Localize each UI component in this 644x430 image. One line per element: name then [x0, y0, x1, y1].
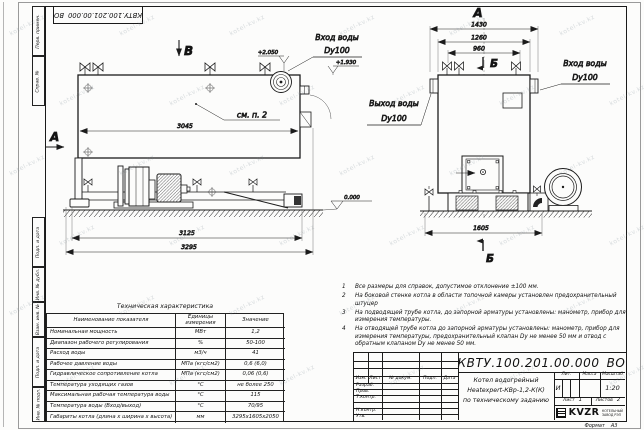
tech-table: Наименование показателя Единицы измерени…	[46, 313, 284, 422]
note-item: 2 На боковой стенке котла в области топо…	[340, 293, 627, 308]
tech-cell: Номинальная мощность	[47, 328, 176, 339]
level-inlet-label: +2.050	[258, 50, 279, 56]
elevation-nozzle	[328, 66, 359, 75]
tb-col-dokum: № докум.	[382, 376, 419, 383]
side-view: 0.000 +2.050 +1.930 Вход воды Dy100	[45, 33, 372, 255]
tb-lit-label: Лит.	[554, 373, 579, 379]
level-nozzle-label: +1.930	[336, 60, 357, 66]
tb-scale-value: 1:20	[600, 379, 625, 397]
format-value: А3	[611, 423, 618, 429]
front-view: А 1430 1260 960 Б Вход воды Dy100 Выход …	[367, 6, 610, 265]
note-number: 2	[340, 293, 355, 308]
description-line: Котел водогрейный	[458, 376, 554, 386]
tb-col-list: Лист	[368, 376, 382, 383]
format-label: Формат	[585, 423, 605, 429]
front-left-valve	[425, 186, 433, 211]
ground-hatch-side	[63, 211, 323, 218]
tech-cell: %	[176, 339, 226, 350]
inlet-nozzle	[530, 79, 538, 93]
dim-3045: 3045	[177, 123, 193, 130]
motor-hatch	[157, 174, 181, 202]
dim-3125: 3125	[179, 230, 195, 237]
tech-table-title: Техническая характеристика	[46, 303, 284, 310]
section-b-top-label: Б	[490, 58, 498, 70]
tb-row-utv: Утв.	[356, 415, 382, 421]
tech-cell: не более 250	[226, 381, 285, 392]
tech-cell: 0,6 (6,0)	[226, 360, 285, 371]
tech-cell: Температура уходящих газов	[47, 381, 176, 392]
doc-suffix: ВО	[607, 357, 626, 369]
view-a-title: А	[472, 6, 482, 20]
drawing-sheet: Перв. примен. Справ. № Подп. и дата Инв.…	[0, 0, 644, 430]
dim-960: 960	[473, 46, 485, 53]
note-text: На боковой стенке котла в области топочн…	[355, 293, 627, 308]
tb-sheet: Лист1	[554, 398, 591, 405]
tech-cell: Габариты котла (длина х ширина х высота)	[47, 412, 176, 423]
dim-1260: 1260	[471, 35, 487, 42]
tb-description: Котел водогрейный Heatexpert-КВр-1,2-К(К…	[458, 372, 554, 420]
tech-cell: 3295х1605х2050	[226, 412, 285, 423]
kvzr-logo: KVZR КОТЕЛЬНЫЙ ЗАВОД РЭП	[554, 405, 625, 420]
tech-cell: Рабочее давление воды	[47, 360, 176, 371]
notes-list: 1 Все размеры для справок, допустимое от…	[340, 284, 627, 351]
side-inlet-label: Вход воды	[315, 33, 359, 42]
ground-hatch-front	[420, 212, 592, 218]
tech-cell: °С	[176, 381, 226, 392]
front-inlet-dn: Dy100	[572, 73, 598, 82]
tech-cell: °С	[176, 391, 226, 402]
see-note-ref: см. п. 2	[237, 111, 267, 120]
tech-cell: Максимальная рабочая температура воды	[47, 391, 176, 402]
tech-cell: Температура воды (Вход/выход)	[47, 402, 176, 413]
tb-row-nkontr: Н.контр.	[356, 408, 382, 414]
tech-cell: 0,06 (0,6)	[226, 370, 285, 381]
tech-cell: Расход воды	[47, 349, 176, 360]
view-b-label: В	[184, 44, 193, 58]
tech-col-header: Единицы измерения	[176, 314, 226, 328]
dim-1430: 1430	[471, 22, 487, 29]
elevation-ground	[323, 201, 372, 210]
note-text: На отводящей трубе котла до запорной арм…	[355, 326, 627, 349]
tb-col-izm: Изм.	[354, 376, 368, 383]
note-number: 3	[340, 310, 355, 325]
kvzr-logo-text: KVZR	[569, 407, 600, 418]
dim-3295: 3295	[181, 244, 197, 251]
tb-mass-label: Масса	[579, 373, 600, 379]
tech-cell: МПа (кгс/см2)	[176, 360, 226, 371]
tech-col-header: Наименование показателя	[47, 314, 176, 328]
front-inlet-label: Вход воды	[563, 59, 607, 68]
front-outlet-dn: Dy100	[381, 114, 407, 123]
note-number: 1	[340, 284, 355, 292]
tb-sheets: Листов2	[591, 398, 625, 405]
tb-scale-label: Масштаб	[600, 373, 625, 379]
note-number: 4	[340, 326, 355, 349]
description-line: по техническому заданию	[458, 396, 554, 406]
kvzr-logo-icon	[556, 408, 566, 418]
inlet-flange-side	[271, 72, 292, 93]
outlet-nozzle	[430, 79, 438, 93]
furnace-door	[456, 156, 503, 193]
note-text: На подводящей трубе котла, до запорной а…	[355, 310, 627, 325]
note-item: 3 На подводящей трубе котла, до запорной…	[340, 310, 627, 325]
fan-blower	[530, 169, 582, 212]
format-note: Формат А3	[566, 423, 636, 429]
note-item: 1 Все размеры для справок, допустимое от…	[340, 284, 627, 292]
doc-number: КВТУ.100.201.00.000	[458, 357, 600, 369]
dim-1605: 1605	[473, 225, 489, 232]
kvzr-logo-subtext: КОТЕЛЬНЫЙ ЗАВОД РЭП	[602, 409, 623, 417]
tech-cell: Диапазон рабочего регулирования	[47, 339, 176, 350]
section-b-bottom-label: Б	[486, 253, 494, 265]
side-right-fittings	[300, 86, 331, 127]
tb-col-data: Дата	[441, 376, 458, 383]
note-item: 4 На отводящей трубе котла до запорной а…	[340, 326, 627, 349]
tech-cell: 1,2	[226, 328, 285, 339]
tb-doc-number: КВТУ.100.201.00.000 ВО	[458, 353, 625, 372]
side-supports	[70, 158, 302, 208]
tech-cell: МПа (кгс/см2)	[176, 370, 226, 381]
tech-cell: 41	[226, 349, 285, 360]
view-a-label-side: А	[49, 130, 59, 144]
front-base	[448, 191, 528, 212]
level-ground-label: 0.000	[344, 195, 360, 201]
tech-cell: °С	[176, 402, 226, 413]
note-text: Все размеры для справок, допустимое откл…	[355, 284, 627, 292]
side-top-valves	[80, 63, 270, 75]
pump-assembly	[114, 166, 193, 208]
tech-col-header: Значение	[226, 314, 285, 328]
tech-cell: МВт	[176, 328, 226, 339]
tb-col-podp: Подп.	[419, 376, 441, 383]
tech-cell: Гидравлическое сопротивление котла	[47, 370, 176, 381]
description-line: Heatexpert-КВр-1,2-К(К)	[458, 386, 554, 396]
tech-cell: мм	[176, 412, 226, 423]
tech-cell: 115	[226, 391, 285, 402]
tech-cell: 50-100	[226, 339, 285, 350]
tech-cell: 70/95	[226, 402, 285, 413]
title-block: Изм. Лист № докум. Подп. Дата Разраб. Пр…	[353, 352, 627, 422]
tech-cell: м3/ч	[176, 349, 226, 360]
front-outlet-label: Выход воды	[369, 99, 419, 108]
side-inlet-dn: Dy100	[324, 46, 350, 55]
tb-lit-value: И	[554, 379, 562, 397]
tb-row-tkontr: Т.контр.	[356, 396, 382, 402]
